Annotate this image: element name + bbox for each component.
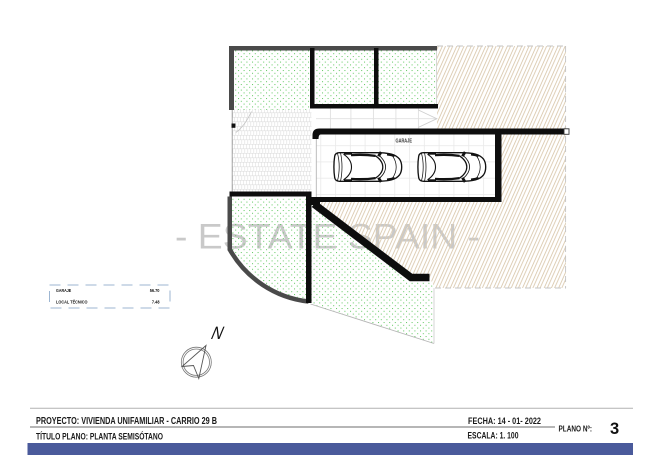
svg-text:PLANO Nº:: PLANO Nº: <box>559 423 593 433</box>
svg-text:TÍTULO PLANO: PLANTA SEMISÓTAN: TÍTULO PLANO: PLANTA SEMISÓTANO <box>36 431 163 442</box>
svg-text:56.70: 56.70 <box>150 288 160 293</box>
svg-text:GARAJE: GARAJE <box>396 138 413 144</box>
svg-text:N: N <box>210 322 227 343</box>
svg-text:LOCAL TÉCNICO: LOCAL TÉCNICO <box>56 297 88 304</box>
svg-text:7.48: 7.48 <box>152 299 160 304</box>
svg-text:PROYECTO: VIVIENDA UNIFAMILIAR: PROYECTO: VIVIENDA UNIFAMILIAR - CARRIO … <box>36 416 217 427</box>
svg-text:GARAJE: GARAJE <box>56 288 71 293</box>
svg-text:3: 3 <box>610 420 619 438</box>
svg-text:FECHA: 14 - 01- 2022: FECHA: 14 - 01- 2022 <box>468 416 541 426</box>
svg-text:ESCALA: 1. 100: ESCALA: 1. 100 <box>468 431 519 441</box>
